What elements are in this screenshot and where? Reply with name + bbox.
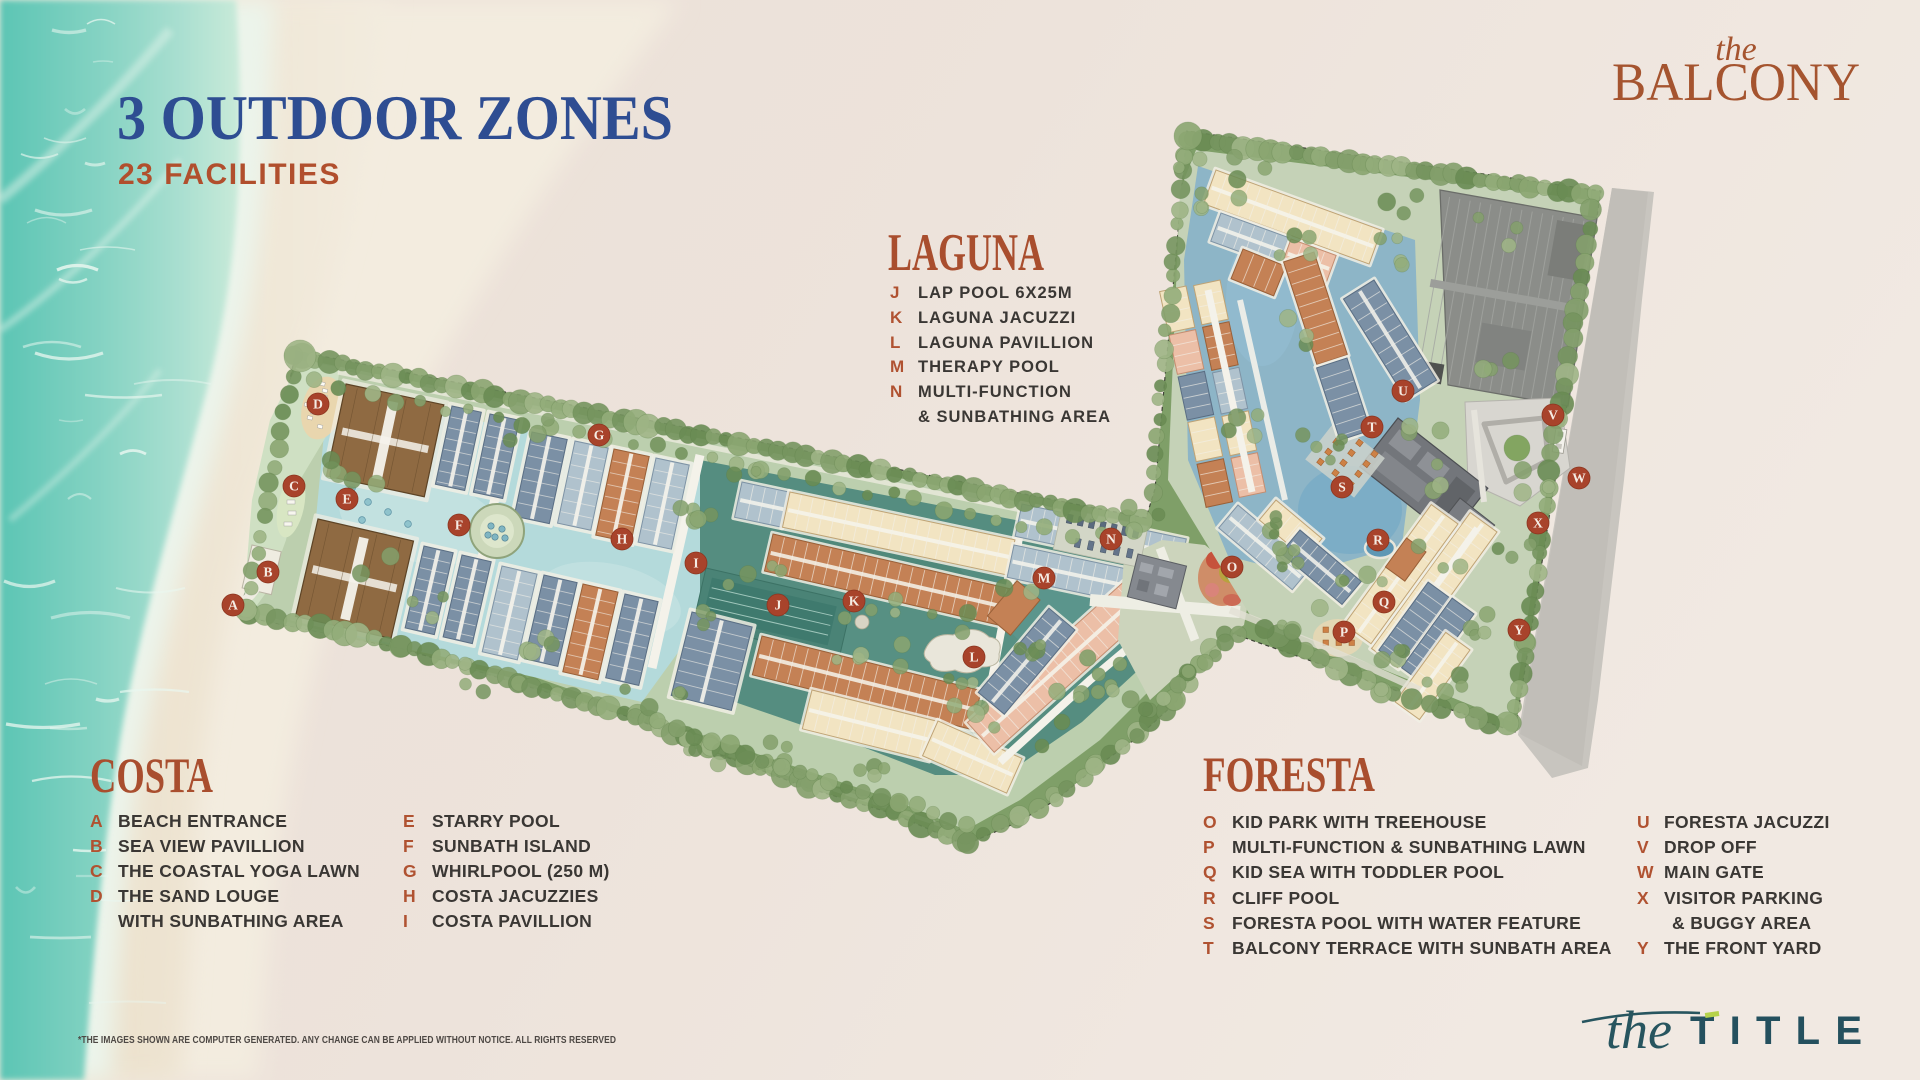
svg-text:X: X [1637,888,1649,908]
svg-text:KID SEA WITH TODDLER POOL: KID SEA WITH TODDLER POOL [1232,862,1504,882]
svg-text:M: M [890,357,904,376]
svg-text:A: A [90,811,103,831]
svg-text:COSTA PAVILLION: COSTA PAVILLION [432,911,592,931]
svg-text:COSTA JACUZZIES: COSTA JACUZZIES [432,886,599,906]
svg-text:LAGUNA PAVILLION: LAGUNA PAVILLION [918,334,1094,352]
svg-text:J: J [775,598,782,613]
svg-text:N: N [890,382,902,401]
svg-text:& SUNBATHING AREA: & SUNBATHING AREA [918,408,1111,426]
svg-text:G: G [594,428,605,443]
svg-text:THE COASTAL YOGA LAWN: THE COASTAL YOGA LAWN [118,861,360,881]
svg-text:T: T [1203,938,1214,958]
svg-text:WHIRLPOOL (250 M): WHIRLPOOL (250 M) [432,861,610,881]
svg-text:Y: Y [1637,938,1649,958]
svg-text:K: K [849,594,860,609]
svg-text:L: L [969,650,978,665]
svg-text:C: C [289,479,299,494]
svg-text:R: R [1373,533,1383,548]
svg-text:V: V [1637,837,1649,857]
svg-text:MULTI-FUNCTION: MULTI-FUNCTION [918,383,1072,401]
svg-text:U: U [1637,812,1650,832]
svg-text:D: D [313,397,323,412]
svg-text:W: W [1637,862,1654,882]
svg-text:H: H [403,886,416,906]
svg-text:O: O [1203,812,1217,832]
svg-text:*THE IMAGES SHOWN ARE COMPUTER: *THE IMAGES SHOWN ARE COMPUTER GENERATED… [78,1035,616,1046]
svg-text:N: N [1106,532,1116,547]
svg-text:BEACH ENTRANCE: BEACH ENTRANCE [118,811,287,831]
svg-text:S: S [1203,913,1215,933]
svg-text:CLIFF POOL: CLIFF POOL [1232,888,1340,908]
svg-text:A: A [228,598,238,613]
svg-text:MAIN GATE: MAIN GATE [1664,862,1764,882]
svg-text:B: B [90,836,103,856]
svg-text:L: L [890,333,900,352]
svg-text:FORESTA JACUZZI: FORESTA JACUZZI [1664,812,1830,832]
svg-text:S: S [1338,480,1346,495]
svg-text:I: I [403,911,408,931]
svg-text:F: F [403,836,414,856]
svg-text:K: K [890,308,903,327]
svg-text:STARRY POOL: STARRY POOL [432,811,560,831]
svg-text:I: I [693,556,698,571]
svg-text:P: P [1203,837,1215,857]
svg-text:SEA VIEW PAVILLION: SEA VIEW PAVILLION [118,836,305,856]
svg-text:Q: Q [1379,595,1390,610]
svg-text:E: E [342,492,351,507]
svg-text:M: M [1038,571,1051,586]
svg-text:B: B [263,565,272,580]
svg-text:& BUGGY AREA: & BUGGY AREA [1672,913,1811,933]
svg-text:R: R [1203,888,1216,908]
svg-text:LAP POOL 6X25M: LAP POOL 6X25M [918,284,1073,302]
svg-text:O: O [1227,560,1238,575]
svg-text:LAGUNA JACUZZI: LAGUNA JACUZZI [918,309,1076,327]
svg-text:Q: Q [1203,862,1217,882]
svg-text:W: W [1572,471,1586,486]
svg-text:H: H [617,532,628,547]
svg-text:J: J [890,283,899,302]
svg-text:P: P [1340,625,1348,640]
svg-text:THE SAND LOUGE: THE SAND LOUGE [118,886,279,906]
svg-text:MULTI-FUNCTION & SUNBATHING LA: MULTI-FUNCTION & SUNBATHING LAWN [1232,837,1586,857]
svg-text:BALCONY TERRACE WITH SUNBATH A: BALCONY TERRACE WITH SUNBATH AREA [1232,938,1612,958]
svg-text:KID PARK WITH TREEHOUSE: KID PARK WITH TREEHOUSE [1232,812,1487,832]
svg-text:DROP OFF: DROP OFF [1664,837,1757,857]
svg-text:the: the [1606,1000,1672,1060]
svg-text:THERAPY POOL: THERAPY POOL [918,358,1060,376]
svg-text:VISITOR PARKING: VISITOR PARKING [1664,888,1823,908]
svg-text:BALCONY: BALCONY [1612,52,1860,112]
svg-text:WITH SUNBATHING AREA: WITH SUNBATHING AREA [118,911,344,931]
svg-text:SUNBATH ISLAND: SUNBATH ISLAND [432,836,591,856]
svg-text:LAGUNA: LAGUNA [888,224,1044,282]
svg-text:G: G [403,861,417,881]
svg-text:Y: Y [1514,623,1524,638]
svg-text:FORESTA POOL WITH WATER FEATUR: FORESTA POOL WITH WATER FEATURE [1232,913,1581,933]
svg-text:U: U [1398,384,1408,399]
svg-text:X: X [1533,516,1543,531]
svg-text:C: C [90,861,103,881]
svg-text:T: T [1367,420,1376,435]
svg-text:E: E [403,811,415,831]
svg-text:23 FACILITIES: 23 FACILITIES [118,158,341,191]
svg-text:3 OUTDOOR ZONES: 3 OUTDOOR ZONES [117,82,673,153]
svg-text:COSTA: COSTA [90,747,213,803]
svg-text:V: V [1548,408,1558,423]
svg-text:THE FRONT YARD: THE FRONT YARD [1664,938,1822,958]
svg-text:D: D [90,886,103,906]
svg-text:F: F [455,518,463,533]
svg-text:FORESTA: FORESTA [1203,746,1375,802]
